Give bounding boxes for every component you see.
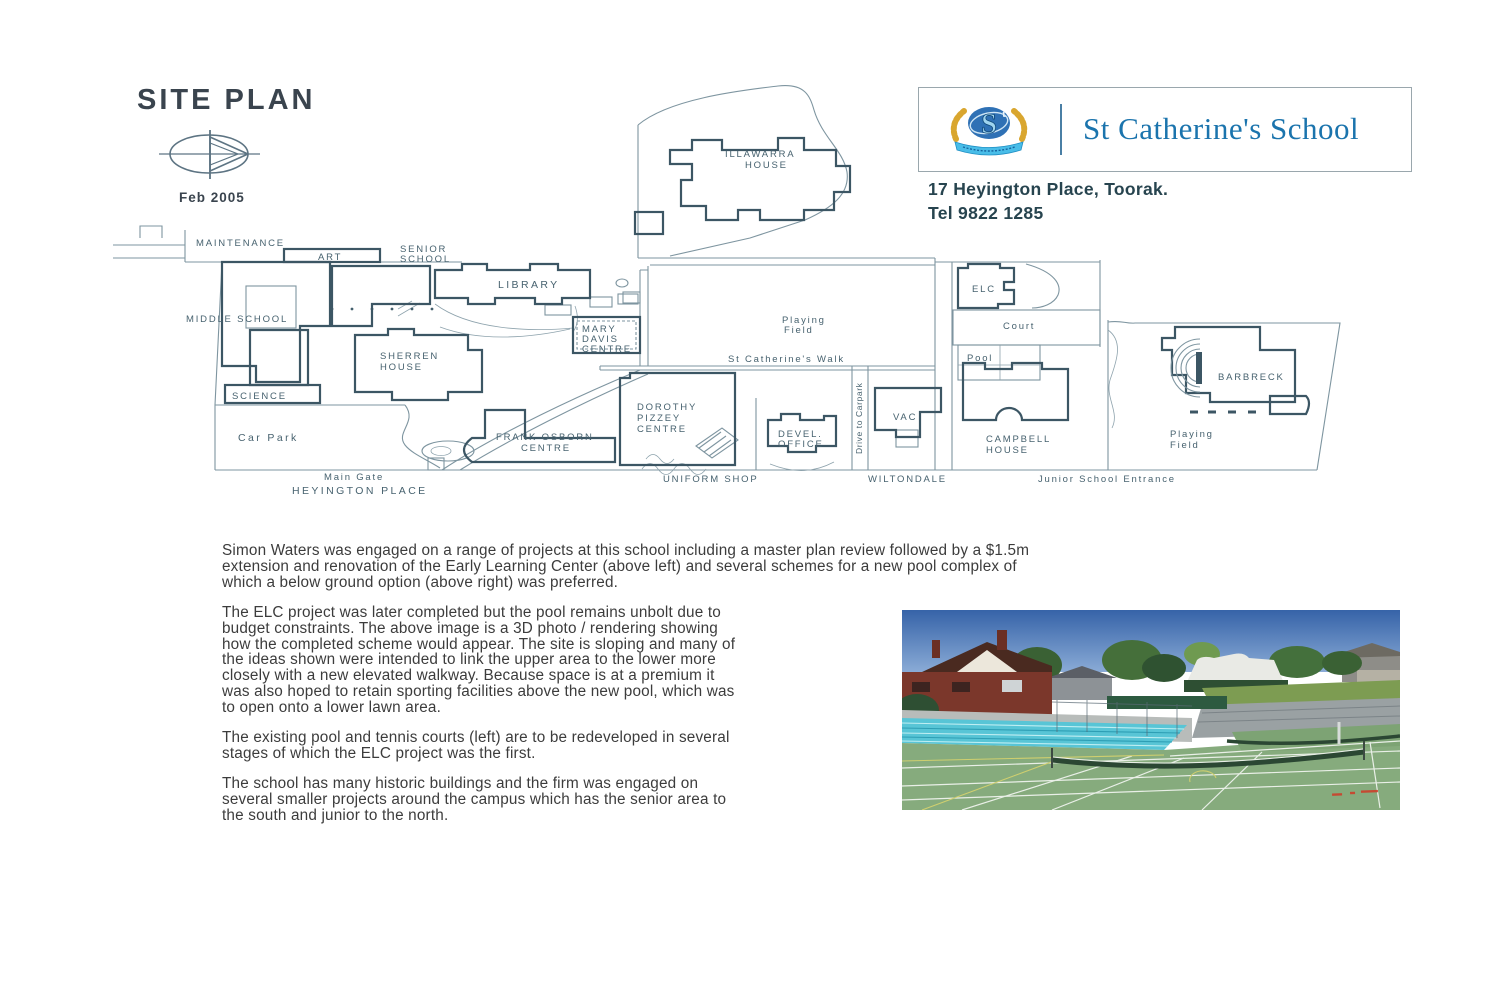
plan-label-pool: Pool [967,353,993,364]
plan-label-wiltondale: WILTONDALE [868,474,947,485]
svg-text:CENTRE: CENTRE [637,424,687,435]
plan-label-illawarra-house: ILLAWARRA [725,149,795,160]
barbreck-wing-core [1196,352,1202,384]
colonnade-dots [331,308,434,311]
plan-label-drive-to-carpark: Drive to Carpark [854,382,864,454]
svg-text:CENTRE: CENTRE [521,443,571,454]
plan-label-elc: ELC [972,284,996,295]
svg-text:PIZZEY: PIZZEY [637,413,681,424]
svg-text:HOUSE: HOUSE [986,445,1029,456]
paragraph-1: Simon Waters was engaged on a range of p… [222,543,1292,591]
plan-label-maintenance: MAINTENANCE [196,238,285,249]
building-outlines [222,138,1309,465]
plan-label-heyington-place: HEYINGTON PLACE [292,485,428,497]
campus-photo [902,610,1400,810]
plan-label-main-gate: Main Gate [324,472,384,483]
plan-label-st-catherines-walk: St Catherine's Walk [728,354,845,365]
plan-label-sherren-house: SHERREN [380,351,439,362]
plan-label-car-park: Car Park [238,432,299,444]
svg-text:OFFICE: OFFICE [778,439,824,450]
svg-text:HOUSE: HOUSE [380,362,423,373]
plan-label-uniform-shop: UNIFORM SHOP [663,474,759,485]
svg-text:Field: Field [1170,440,1200,451]
scanned-document-page: SITE PLAN Feb 2005 S t St Catherine's Sc… [0,0,1500,1000]
plan-label-junior-school-entrance: Junior School Entrance [1038,474,1176,485]
photo-green-canopy [1107,696,1227,709]
building-campbell-house-outline [963,363,1068,420]
plan-label-art: ART [318,252,342,263]
plan-label-vac: VAC [893,412,917,423]
plan-label-dorothy-pizzey: DOROTHY [637,402,697,413]
svg-text:HOUSE: HOUSE [745,160,788,171]
plan-label-middle-school: MIDDLE SCHOOL [186,314,288,325]
plan-label-library: LIBRARY [498,279,560,291]
plan-label-barbreck: BARBRECK [1218,372,1285,383]
building-illawarra-annex-outline [635,212,663,234]
building-barbreck-annex-outline [1270,396,1309,414]
svg-text:Field: Field [784,325,814,336]
svg-text:SCHOOL: SCHOOL [400,254,451,265]
svg-text:CENTRE: CENTRE [582,344,632,355]
plan-label-playing-field-right: Playing [1170,429,1214,440]
site-plan-drawing: MAINTENANCE ART SENIOR SCHOOL LIBRARY MI… [110,80,1370,510]
plan-label-frank-osborn: FRANK OSBORN [496,432,594,443]
plan-label-campbell-house: CAMPBELL [986,434,1051,445]
plan-boundary-lines [113,86,1340,475]
building-senior-school-outline [332,266,430,326]
plan-label-court: Court [1003,321,1035,332]
plan-label-science: SCIENCE [232,391,287,402]
